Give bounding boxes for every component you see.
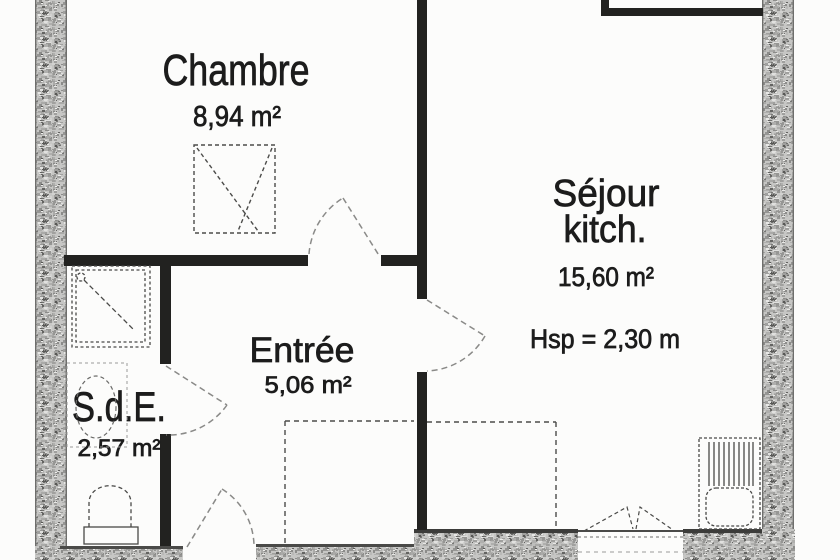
svg-text:S.d.E.: S.d.E. [72,383,166,430]
svg-text:15,60 m²: 15,60 m² [558,262,654,292]
svg-text:2,57 m²: 2,57 m² [78,435,161,462]
svg-text:5,06 m²: 5,06 m² [265,372,352,399]
svg-text:Hsp = 2,30 m: Hsp = 2,30 m [530,324,680,354]
svg-text:8,94 m²: 8,94 m² [193,101,281,133]
svg-text:Entrée: Entrée [250,331,355,370]
svg-text:Chambre: Chambre [163,46,310,95]
svg-text:kitch.: kitch. [564,209,647,251]
